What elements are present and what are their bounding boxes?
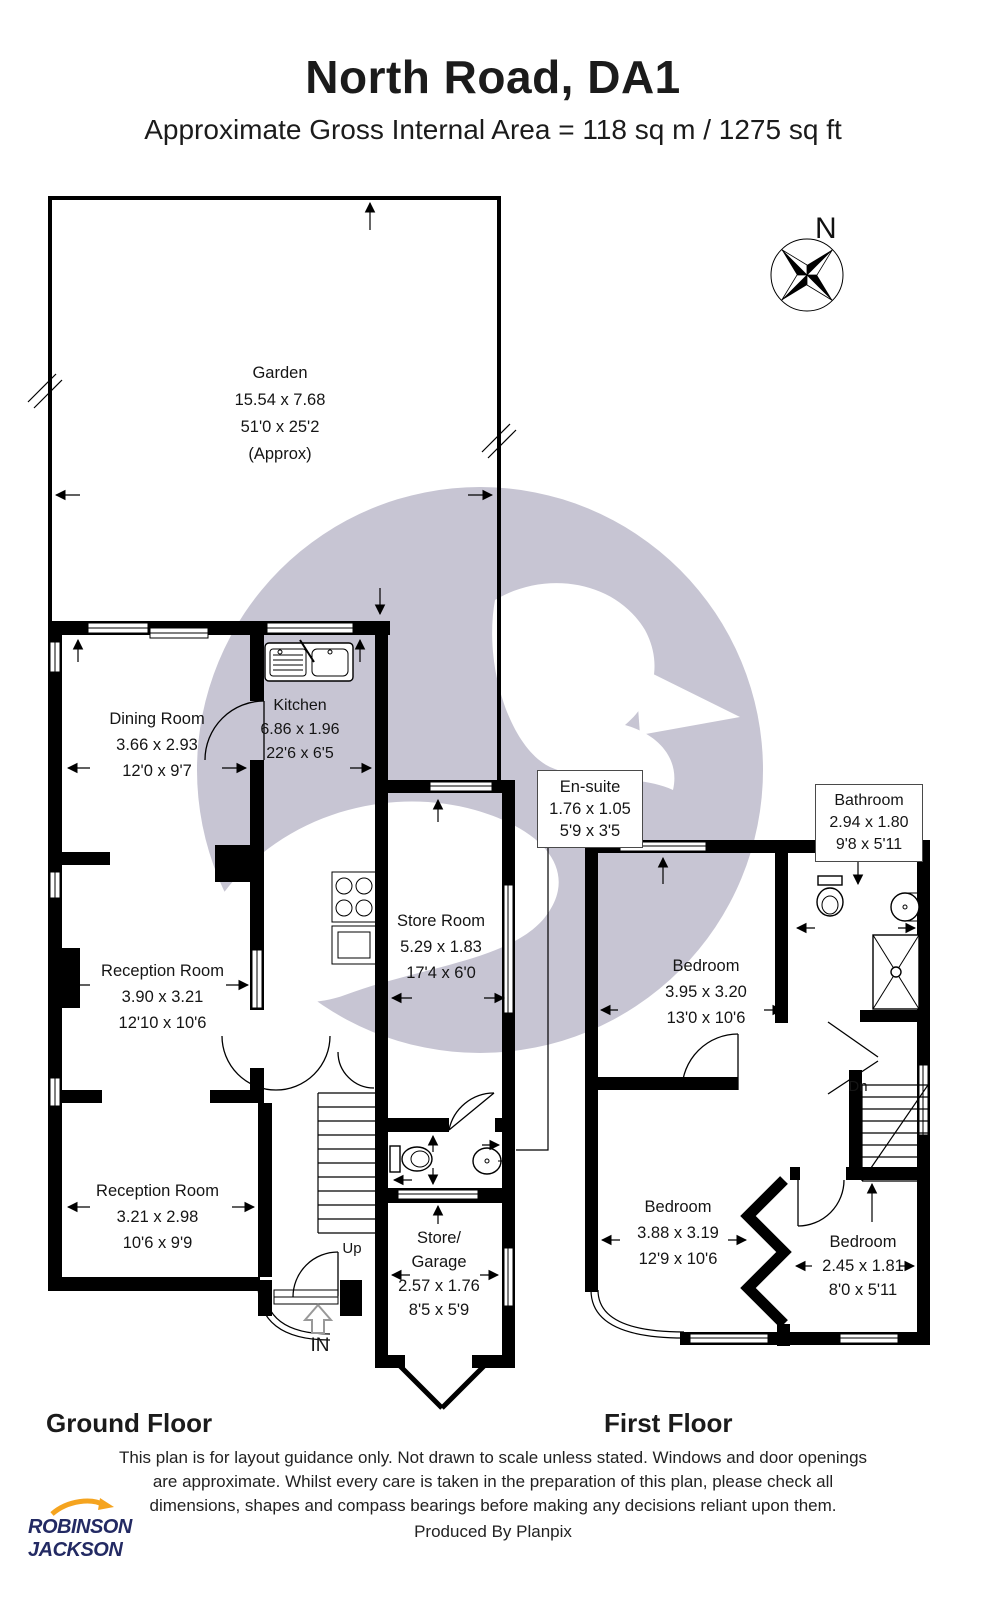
room-label-kitchen: Kitchen 6.86 x 1.96 22'6 x 6'5	[220, 694, 380, 766]
stairs-up	[318, 1093, 375, 1233]
room-label-garage: Store/ Garage 2.57 x 1.76 8'5 x 5'9	[363, 1226, 515, 1322]
stairs-up-label: Up	[330, 1236, 374, 1262]
room-label-garden: Garden 15.54 x 7.68 51'0 x 25'2 (Approx)	[180, 360, 380, 468]
room-label-reception2: Reception Room 3.21 x 2.98 10'6 x 9'9	[45, 1178, 270, 1256]
room-label-bedroom3: Bedroom 2.45 x 1.81 8'0 x 5'11	[790, 1230, 936, 1302]
room-label-ensuite: En-suite 1.76 x 1.05 5'9 x 3'5	[537, 770, 643, 848]
stairs-down-label: Dn	[838, 1074, 878, 1100]
room-label-bedroom1: Bedroom 3.95 x 3.20 13'0 x 10'6	[606, 953, 806, 1031]
disclaimer-line-1: This plan is for layout guidance only. N…	[0, 1448, 986, 1468]
agent-logo-swoosh-icon	[50, 1498, 114, 1516]
room-label-bedroom2: Bedroom 3.88 x 3.19 12'9 x 10'6	[578, 1194, 778, 1272]
ground-floor-title: Ground Floor	[46, 1408, 212, 1439]
room-label-reception1: Reception Room 3.90 x 3.21 12'10 x 10'6	[50, 958, 275, 1036]
disclaimer-line-3: dimensions, shapes and compass bearings …	[0, 1496, 986, 1516]
wc-basin-icon	[473, 1148, 504, 1174]
agent-logo: ROBINSON JACKSON	[28, 1498, 116, 1562]
agent-logo-line2: JACKSON	[28, 1539, 116, 1562]
entrance-arrow-icon	[305, 1305, 331, 1333]
bathroom-toilet-icon	[817, 876, 843, 916]
produced-by-label: Produced By Planpix	[0, 1522, 986, 1542]
disclaimer-line-2: are approximate. Whilst every care is ta…	[0, 1472, 986, 1492]
room-label-store: Store Room 5.29 x 1.83 17'4 x 6'0	[365, 908, 517, 986]
label-leaders	[516, 838, 548, 1150]
room-label-bathroom: Bathroom 2.94 x 1.80 9'8 x 5'11	[815, 784, 923, 862]
wc-toilet-icon	[390, 1146, 432, 1172]
floorplan-page: North Road, DA1 Approximate Gross Intern…	[0, 0, 986, 1600]
entrance-in-label: IN	[298, 1333, 342, 1359]
bathroom-basin-icon	[891, 893, 919, 921]
agent-logo-line1: ROBINSON	[28, 1516, 116, 1539]
kitchen-sink	[265, 640, 353, 681]
first-floor-title: First Floor	[604, 1408, 733, 1439]
shower-icon	[873, 935, 919, 1009]
